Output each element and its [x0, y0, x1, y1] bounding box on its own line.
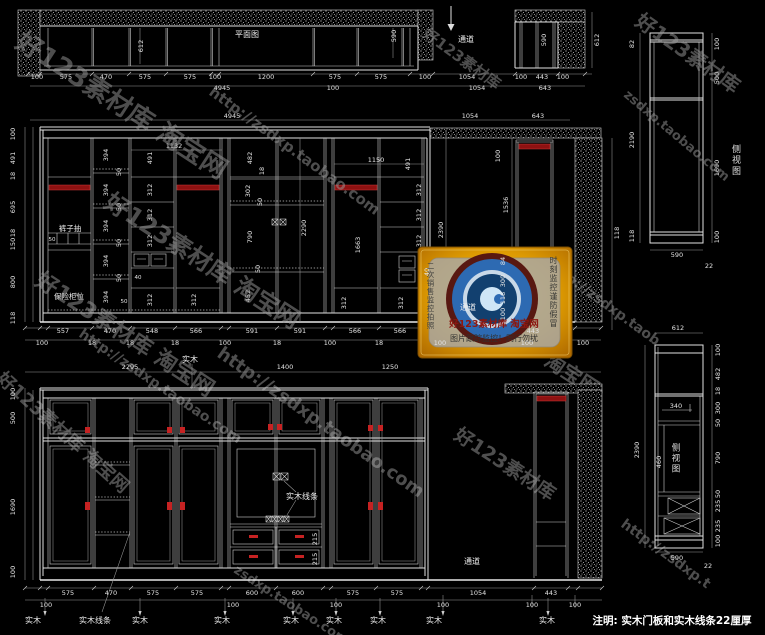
dim-label: 50 [714, 419, 722, 427]
dim-label: 612 [593, 34, 601, 46]
dim-label: 612 [672, 324, 684, 332]
hanging-rod [49, 185, 90, 190]
drawer-handle [295, 535, 304, 538]
dim-label: 1250 [382, 363, 399, 371]
dim-label: 394 [102, 220, 110, 232]
wall-hatch [578, 390, 602, 578]
wall-hatch [515, 10, 585, 22]
dim-label: 100 [31, 73, 43, 81]
dim-label: 590 [390, 30, 398, 42]
dim-label: 100 [494, 150, 502, 162]
dim-label: 1054 [469, 84, 486, 92]
dim-label: 100 [209, 73, 221, 81]
dim-label: 100 [515, 73, 527, 81]
plan-title: 平面图 [235, 30, 259, 39]
dim-label: 100 [9, 566, 17, 578]
wall-hatch [40, 10, 418, 26]
dim-label: 118 [499, 292, 507, 304]
solid-wood-label: 实木 [426, 615, 442, 625]
dim-label: 312 [340, 297, 348, 309]
solid-wood-label: 实木 [283, 615, 299, 625]
door-handle [180, 502, 185, 510]
dim-label: 235 [714, 500, 722, 512]
trim-label: 实木线条 [286, 491, 318, 501]
dim-label: 460 [655, 456, 663, 468]
dim-label: 470 [105, 589, 117, 597]
dim-label: 566 [190, 327, 202, 335]
dim-label: 2390 [633, 442, 641, 459]
dim-label: 575 [184, 73, 196, 81]
dim-label: 312 [397, 297, 405, 309]
dim-label: 600 [246, 589, 258, 597]
solid-wood-label: 实木 [132, 615, 148, 625]
dim-label: 18 [9, 229, 17, 237]
dim-label: 50 [256, 198, 264, 206]
dim-label: 150 [9, 238, 17, 250]
dim-label: 443 [545, 589, 557, 597]
dim-label: 84 [499, 257, 507, 265]
dim-label: 302 [244, 185, 252, 197]
dim-label: 100 [569, 601, 581, 609]
dim-label: 50 [121, 299, 128, 305]
door-handle [167, 427, 172, 433]
channel-label: 通道 [460, 302, 476, 312]
dim-label: 100 [713, 38, 721, 50]
dim-label: 312 [190, 294, 198, 306]
dim-label: 312 [415, 184, 423, 196]
dim-label: 100 [557, 73, 569, 81]
dim-label: 18 [9, 172, 17, 180]
dim-label: 643 [532, 112, 544, 120]
dim-label: 18 [375, 339, 383, 347]
dim-label: 50 [254, 265, 262, 273]
dim-label: 100 [36, 339, 48, 347]
dim-label: 575 [329, 73, 341, 81]
dim-label: 50 [714, 490, 722, 498]
dim-label: 100 [526, 601, 538, 609]
solid-wood-label: 实木 [25, 615, 41, 625]
solid-wood-label: 实木 [214, 615, 230, 625]
dim-label: 100 [713, 231, 721, 243]
dim-label: 590 [540, 34, 548, 46]
dim-label: 590 [671, 554, 683, 562]
door-handle [167, 502, 172, 510]
dim-label: 100 [324, 339, 336, 347]
dim-label: 18 [171, 339, 179, 347]
dim-label: 18 [714, 387, 722, 395]
dim-label: 100 [330, 601, 342, 609]
dim-label: 100 [434, 339, 446, 347]
solid-wood-label: 实木 [539, 615, 555, 625]
dim-label: 100 [499, 308, 507, 320]
dim-label: 22 [705, 262, 713, 270]
door-handle [180, 427, 185, 433]
dim-label: 482 [246, 152, 254, 164]
dim-label: 2295 [122, 363, 139, 371]
dim-label: 215 [311, 533, 319, 545]
trim-label: 实木线条 [79, 615, 111, 625]
dim-label: 591 [246, 327, 258, 335]
drawer-handle [295, 555, 304, 558]
dim-label: 566 [394, 327, 406, 335]
dim-label: 695 [9, 201, 17, 213]
dim-label: 1400 [277, 363, 294, 371]
hanging-rod [519, 144, 550, 149]
door-handle [268, 424, 273, 430]
side-view-label: 侧视图 [669, 443, 681, 475]
dim-label: 50 [115, 274, 123, 282]
logo-site-name: 好123素材库 淘宝网 [448, 318, 539, 330]
drawer-handle [249, 555, 258, 558]
dim-label: 575 [139, 73, 151, 81]
wall-hatch [558, 22, 585, 68]
dim-label: 591 [294, 327, 306, 335]
dim-label: 491 [146, 152, 154, 164]
dim-label: 100 [40, 601, 52, 609]
dim-label: 2390 [437, 222, 445, 239]
door-handle [368, 425, 373, 431]
dim-label: 1663 [354, 237, 362, 254]
dim-label: 100 [714, 344, 722, 356]
note-text: 注明: 实木门板和实木线条22厘厚 [593, 614, 752, 627]
cad-drawing: 平面图 通道 612 590 100 575 470 575 575 100 1… [0, 0, 765, 635]
dim-label: 790 [246, 231, 254, 243]
dim-label: 575 [62, 589, 74, 597]
dim-label: 300 [714, 402, 722, 414]
dim-label: 394 [102, 184, 110, 196]
dim-label: 18 [258, 167, 266, 175]
dim-label: 1200 [258, 73, 275, 81]
hanging-rod [537, 396, 566, 401]
dim-label: 566 [349, 327, 361, 335]
wall-hatch [430, 128, 601, 138]
dim-label: 491 [404, 158, 412, 170]
dim-label: 100 [9, 128, 17, 140]
dim-label: 50 [115, 239, 123, 247]
dim-label: 575 [191, 589, 203, 597]
door-handle [85, 427, 90, 433]
trouser-drawer-label: 裤子抽 [59, 223, 82, 233]
dim-label: 394 [102, 291, 110, 303]
logo-vertical-text-right: 时刻监控谨防假冒 [548, 256, 559, 328]
dim-label: 100 [577, 339, 589, 347]
dim-label: 235 [714, 520, 722, 532]
dim-label: 312 [146, 184, 154, 196]
dim-label: 312 [415, 235, 423, 247]
dim-label: 575 [391, 589, 403, 597]
door-handle [277, 424, 282, 430]
cad-drawing-canvas: 平面图 通道 612 590 100 575 470 575 575 100 1… [0, 0, 765, 635]
dim-label: 600 [292, 589, 304, 597]
dim-label: 1536 [502, 197, 510, 214]
dim-label: 215 [311, 553, 319, 565]
door-handle [378, 502, 383, 510]
dim-label: 100 [327, 84, 339, 92]
dim-label: 482 [714, 368, 722, 380]
solid-wood-label: 实木 [326, 615, 342, 625]
dim-label: 340 [670, 402, 682, 410]
dim-label: 443 [536, 73, 548, 81]
drawer-handle [249, 535, 258, 538]
solid-wood-label: 实木 [182, 354, 198, 364]
dim-label: 491 [9, 152, 17, 164]
dim-label: 100 [521, 339, 533, 347]
hanging-rod [177, 185, 219, 190]
dim-label: 575 [147, 589, 159, 597]
dim-label: 1150 [368, 156, 385, 164]
dim-label: 2290 [300, 220, 308, 237]
dim-label: 118 [628, 230, 636, 242]
dim-label: 312 [146, 294, 154, 306]
dim-label: 82 [628, 40, 636, 48]
dim-label: 394 [102, 149, 110, 161]
dim-label: 557 [57, 327, 69, 335]
dim-label: 312 [415, 209, 423, 221]
dim-label: 118 [613, 227, 621, 239]
dim-label: 100 [227, 601, 239, 609]
logo-vertical-text-left: 二次销售监控拍照 [425, 262, 436, 330]
dim-label: 1054 [462, 112, 479, 120]
dim-label: 100 [419, 73, 431, 81]
dim-label: 500 [9, 412, 17, 424]
dim-label: 575 [347, 589, 359, 597]
dim-label: 590 [671, 251, 683, 259]
dim-label: 18 [273, 339, 281, 347]
dim-label: 790 [714, 452, 722, 464]
dim-label: 1690 [9, 499, 17, 516]
solid-wood-label: 实木 [370, 615, 386, 625]
dim-label: 22 [704, 562, 712, 570]
dim-label: 443 [527, 327, 539, 335]
dim-label: 50 [49, 237, 56, 243]
dim-label: 1054 [470, 589, 487, 597]
side-view-label: 侧视图 [729, 144, 742, 177]
door-handle [378, 425, 383, 431]
dim-label: 2190 [628, 132, 636, 149]
door-handle [368, 502, 373, 510]
dim-label: 800 [9, 276, 17, 288]
dim-label: 394 [102, 255, 110, 267]
dim-label: 100 [437, 601, 449, 609]
dim-label: 612 [137, 40, 145, 52]
dim-label: 548 [146, 327, 158, 335]
dim-label: 118 [9, 312, 17, 324]
channel-label: 通道 [458, 34, 474, 44]
dim-label: 300 [499, 275, 507, 287]
dim-label: 643 [539, 84, 551, 92]
dim-label: 100 [9, 388, 17, 400]
door-handle [85, 502, 90, 510]
dim-label: 575 [375, 73, 387, 81]
dim-label: 40 [135, 275, 142, 281]
dim-label: 100 [714, 535, 722, 547]
channel-label: 通道 [464, 556, 480, 566]
dim-label: 50 [115, 168, 123, 176]
